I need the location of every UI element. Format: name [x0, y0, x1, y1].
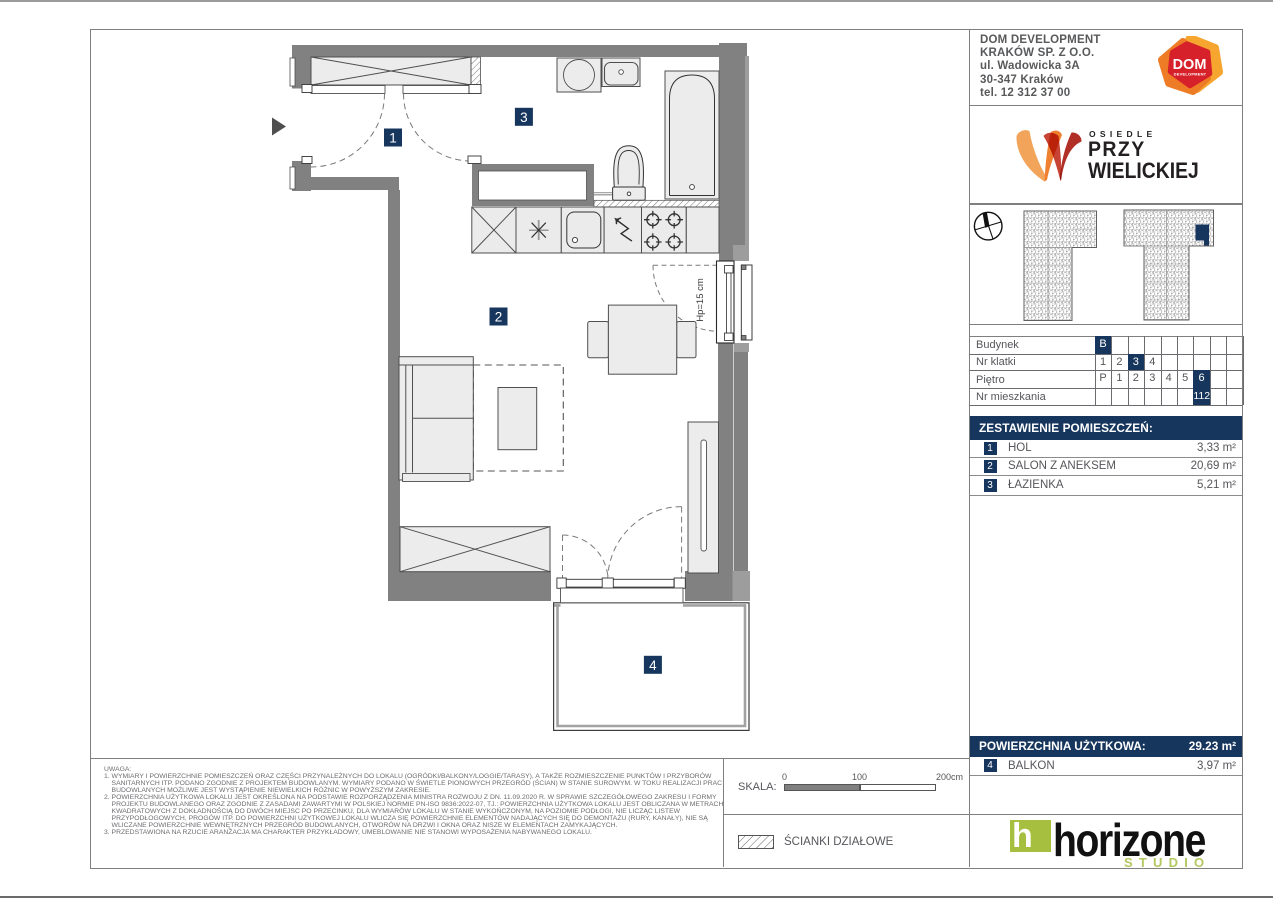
svg-text:DEVELOPMENT: DEVELOPMENT: [1174, 72, 1207, 77]
svg-text:2: 2: [495, 310, 503, 325]
svg-text:Hp=15 cm: Hp=15 cm: [695, 278, 706, 322]
svg-text:1: 1: [389, 131, 397, 146]
svg-text:3: 3: [520, 110, 528, 125]
svg-text:4: 4: [649, 658, 657, 673]
